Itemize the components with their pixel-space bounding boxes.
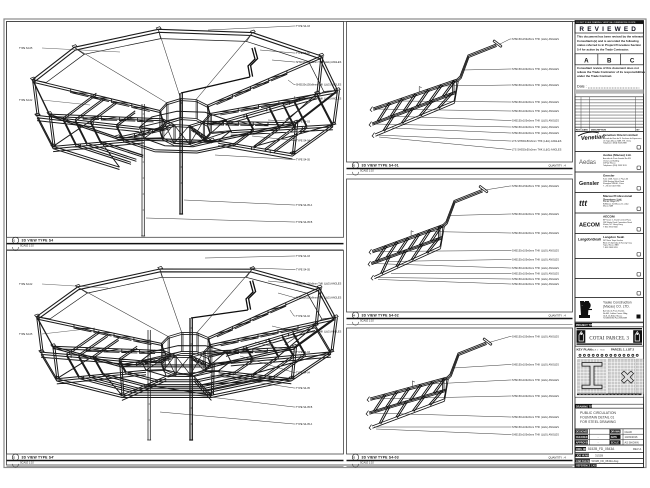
svg-text:TYPE S4-04: TYPE S4-04 [296,140,311,143]
svg-text:SHS150x100x6mm THK (L&G) ANGLE: SHS150x100x6mm THK (L&G) ANGLES [512,126,559,129]
svg-text:QUANTITY : 4: QUANTITY : 4 [549,164,567,168]
svg-text:3D VIEW TYPE S4': 3D VIEW TYPE S4' [22,456,55,460]
svg-text:FOR STEEL DRAWING: FOR STEEL DRAWING [580,420,616,424]
svg-text:TYPE S4-03: TYPE S4-03 [296,121,311,124]
svg-text:QUANTITY : 4: QUANTITY : 4 [549,456,567,460]
svg-text:3152B: 3152B [595,454,603,458]
svg-text:FOUNTAIN DETAIL 01: FOUNTAIN DETAIL 01 [580,415,614,419]
svg-text:3D VIEW TYPE S4-01: 3D VIEW TYPE S4-01 [362,164,399,168]
svg-text:TYPE S4-04: TYPE S4-04 [296,372,311,375]
svg-text:(Macau) CO. LTD.: (Macau) CO. LTD. [603,305,630,309]
svg-text:CHAD: CHAD [625,430,632,434]
svg-text:SCALE: SCALE [611,441,620,444]
svg-text:SHS150x100x6mm THK (L&G) ANGLE: SHS150x100x6mm THK (L&G) ANGLES [512,249,559,252]
svg-text:AECOM: AECOM [603,215,615,219]
svg-text:SHS150x100x6mm THK (L&G) ANGLE: SHS150x100x6mm THK (L&G) ANGLES [512,232,559,235]
svg-text:SHS150x100x6mm THK (L&G) ANGLE: SHS150x100x6mm THK (L&G) ANGLES [512,379,559,382]
svg-text:Gensler: Gensler [603,174,615,178]
svg-text:SCALE 1:10: SCALE 1:10 [360,320,374,323]
svg-text:Aedas: Aedas [579,160,596,166]
svg-text:Tel:28353380 Fax:28353389: Tel:28353380 Fax:28353389 [603,318,627,320]
svg-text:under the Trade Contract.: under the Trade Contract. [577,74,612,78]
svg-text:01: 01 [12,239,16,243]
svg-text:-: - [598,442,599,445]
svg-text:Venetian Orient Limited: Venetian Orient Limited [603,133,638,137]
svg-text:SCALE 1 : 7500: SCALE 1 : 7500 [589,348,605,351]
svg-text:TYPE S4-05 B: TYPE S4-05 B [296,221,313,224]
svg-text:TYPE S4-02: TYPE S4-02 [296,52,311,55]
svg-text:TYPE S4-05: TYPE S4-05 [19,333,33,336]
svg-text:​ttt: ​ttt [579,199,587,208]
svg-text:PARCEL 1, LOT 2: PARCEL 1, LOT 2 [611,348,634,352]
svg-text:TYPE S4-05 A: TYPE S4-05 A [296,204,312,207]
svg-text:TYPE S4-02: TYPE S4-02 [296,315,311,318]
svg-text:T: 852 3922 9000: T: 852 3922 9000 [603,226,618,228]
svg-text:DESIGNED: DESIGNED [576,431,589,434]
svg-text:TYPE S4-05 A: TYPE S4-05 A [296,423,312,426]
svg-text:DRAWN: DRAWN [611,431,620,434]
svg-text:SHS150x100x6mm THK (L&G) ANGLE: SHS150x100x6mm THK (L&G) ANGLES [512,272,559,275]
svg-text:TYPE S4-05: TYPE S4-05 [19,47,33,50]
svg-text:SHS150x100x6mm THK (L&G) ANGLE: SHS150x100x6mm THK (L&G) ANGLES [512,395,559,398]
svg-text:SHS150x100x6mm THK (L&G) ANGLE: SHS150x100x6mm THK (L&G) ANGLES [512,68,559,71]
svg-text:03: 03 [352,456,356,460]
svg-text:SHS150x100x6mm THK (L&G) ANGLE: SHS150x100x6mm THK (L&G) ANGLES [512,258,559,261]
svg-text:SHS150x100x6mm THK (L&G) ANGLE: SHS150x100x6mm THK (L&G) ANGLES [512,278,559,281]
svg-text:SHS150x100x6mm THK (L&G) ANGLE: SHS150x100x6mm THK (L&G) ANGLES [512,433,559,436]
svg-text:SHS150x100x6mm THK (L&G) ANGLE: SHS150x100x6mm THK (L&G) ANGLES [512,416,559,419]
svg-text:SHS150x150x8mm THK (L&G) ANGLE: SHS150x150x8mm THK (L&G) ANGLES [296,283,342,286]
svg-text:5.4 for action by the Trade Co: 5.4 for action by the Trade Contractor. [577,48,629,52]
svg-text:SHS150x100x6mm THK (L&G) ANGLE: SHS150x100x6mm THK (L&G) ANGLES [512,110,559,113]
svg-text:LTS SHS50x50x3mm THK (L&G) ANG: LTS SHS50x50x3mm THK (L&G) ANGLES [512,140,562,143]
svg-text:DWG NO: DWG NO [576,448,586,451]
svg-text:LangdonSeah: LangdonSeah [578,238,601,242]
svg-text:SHS150x100x6mm THK (L&G) ANGLE: SHS150x100x6mm THK (L&G) ANGLES [512,267,559,270]
svg-text:T: 853 2883 3293: T: 853 2883 3293 [603,247,618,249]
svg-text:LTS SHS50x50x3mm THK (L&G) ANG: LTS SHS50x50x3mm THK (L&G) ANGLES [512,148,562,151]
svg-text:SHS150x100x6mm THK (L&G) ANGLE: SHS150x100x6mm THK (L&G) ANGLES [512,119,559,122]
svg-text:AECOM: AECOM [579,223,600,229]
svg-text:5152B_FD_0543A.dwg: 5152B_FD_0543A.dwg [592,459,619,463]
svg-text:CHECKED: CHECKED [576,436,588,439]
svg-text:C: C [630,58,635,65]
svg-text:SHS150x150x8mm THK (L&G) ANGLE: SHS150x150x8mm THK (L&G) ANGLES [512,185,559,188]
svg-text:A: A [584,58,589,65]
svg-text:Aedas (Macau) Ltd.: Aedas (Macau) Ltd. [603,153,632,157]
svg-text:TYPE S4-05: TYPE S4-05 [296,269,311,272]
svg-text:SHS150x150x8mm THK (L&G) ANGLE: SHS150x150x8mm THK (L&G) ANGLES [512,38,559,41]
svg-text:COTAI PARCEL 3: COTAI PARCEL 3 [589,337,629,342]
svg-text:SHS150x100x6mm THK (L&G) ANGLE: SHS150x100x6mm THK (L&G) ANGLES [512,84,559,87]
svg-text:TYPE S4-05 B: TYPE S4-05 B [296,406,313,409]
svg-text:APPROVED: APPROVED [576,441,590,444]
svg-text:SHS150x150x8mm THK (L&G) ANGLE: SHS150x150x8mm THK (L&G) ANGLES [296,297,342,300]
svg-text:3D VIEW TYPE S4: 3D VIEW TYPE S4 [22,239,54,243]
svg-text:SHS150x100x6mm THK (L&G) ANGLE: SHS150x100x6mm THK (L&G) ANGLES [512,132,559,135]
svg-text:SHS150x100x6mm THK (L&G) ANGLE: SHS150x100x6mm THK (L&G) ANGLES [512,363,559,366]
svg-text:T + 86 21 6103 7666: T + 86 21 6103 7666 [603,185,620,187]
svg-text:05: 05 [352,164,356,168]
svg-text:SHS150x100x6mm THK (L&G) ANGLE: SHS150x100x6mm THK (L&G) ANGLES [512,283,559,286]
svg-text:SHS150x150x8mm THK (L&G) ANGLE: SHS150x150x8mm THK (L&G) ANGLES [296,331,342,334]
svg-text:B: B [607,58,612,65]
svg-text:TYPE S4-05: TYPE S4-05 [296,387,311,390]
svg-text:SCALE 1:10: SCALE 1:10 [360,462,374,465]
svg-text:5152B_FD_0543A: 5152B_FD_0543A [588,447,615,451]
svg-text:Date :: Date : [577,85,587,89]
svg-text:SHS150x100x6mm THK (L&G) ANGLE: SHS150x100x6mm THK (L&G) ANGLES [512,213,559,216]
svg-text:TYPE S4-03: TYPE S4-03 [296,255,311,258]
svg-text:SCALE 1:10: SCALE 1:10 [20,462,34,465]
svg-text:DATE: DATE [611,436,618,439]
svg-text:14/03/2016: 14/03/2016 [625,435,639,439]
svg-text:SCALE 1:10: SCALE 1:10 [360,170,374,173]
svg-text:3D VIEW TYPE S4-02: 3D VIEW TYPE S4-02 [362,314,399,318]
svg-text:DATE: DATE [582,129,588,132]
svg-text:PUBLIC CIRCULATION: PUBLIC CIRCULATION [580,411,616,415]
svg-text:Macau SAR: Macau SAR [603,205,614,208]
svg-text:DRAWING TITLE: DRAWING TITLE [576,405,596,408]
svg-text:SHS150x150x8mm THK (L&G) ANGLE: SHS150x150x8mm THK (L&G) ANGLES [296,98,342,101]
svg-text:SHS150x150x8mm THK (L&G) ANGLE: SHS150x150x8mm THK (L&G) ANGLES [296,61,342,64]
svg-text:REFERENCE CAD FILE NAME: REFERENCE CAD FILE NAME [576,464,609,467]
svg-text:TYPE S4-05: TYPE S4-05 [296,159,311,162]
svg-text:Gensler: Gensler [579,181,600,187]
svg-text:TYPE S4-03: TYPE S4-03 [296,25,311,28]
svg-text:JOB NUMBER: JOB NUMBER [576,454,592,457]
svg-text:PROJECT TITLE: PROJECT TITLE [576,324,596,327]
svg-text:-: - [598,436,599,439]
svg-text:TYPE S4-03: TYPE S4-03 [296,351,311,354]
svg-text:SHS150x100x6mm THK (L&G) ANGLE: SHS150x100x6mm THK (L&G) ANGLES [512,101,559,104]
svg-text:Langdon Seah: Langdon Seah [603,235,624,239]
svg-text:REVIEWED: REVIEWED [579,26,639,33]
svg-text:TYPE S4-02: TYPE S4-02 [19,283,33,286]
svg-text:REV A: REV A [633,447,641,451]
svg-text:3D VIEW TYPE S4-03: 3D VIEW TYPE S4-03 [362,456,399,460]
svg-text:AS SHOWN: AS SHOWN [625,441,639,445]
svg-text:SHS150x100x6mm THK (L&G) ANGLE: SHS150x100x6mm THK (L&G) ANGLES [512,426,559,429]
svg-text:TYPE S4-02: TYPE S4-02 [19,99,33,102]
svg-text:Telephone: (853) 8118 2888: Telephone: (853) 8118 2888 [603,143,627,145]
svg-text:02: 02 [12,456,16,460]
svg-text:SHS150x150x8mm THK (L&G) ANGLE: SHS150x150x8mm THK (L&G) ANGLES [512,335,559,338]
svg-text:SCALE 1:10: SCALE 1:10 [20,245,34,248]
svg-text:QUANTITY : 4: QUANTITY : 4 [549,314,567,318]
svg-text:SHS150x150x8mm THK (L&G) ANGLE: SHS150x150x8mm THK (L&G) ANGLES [296,84,342,87]
svg-text:Telephone: (853) 2833 1133: Telephone: (853) 2833 1133 [603,165,627,167]
svg-text:04: 04 [352,314,356,318]
